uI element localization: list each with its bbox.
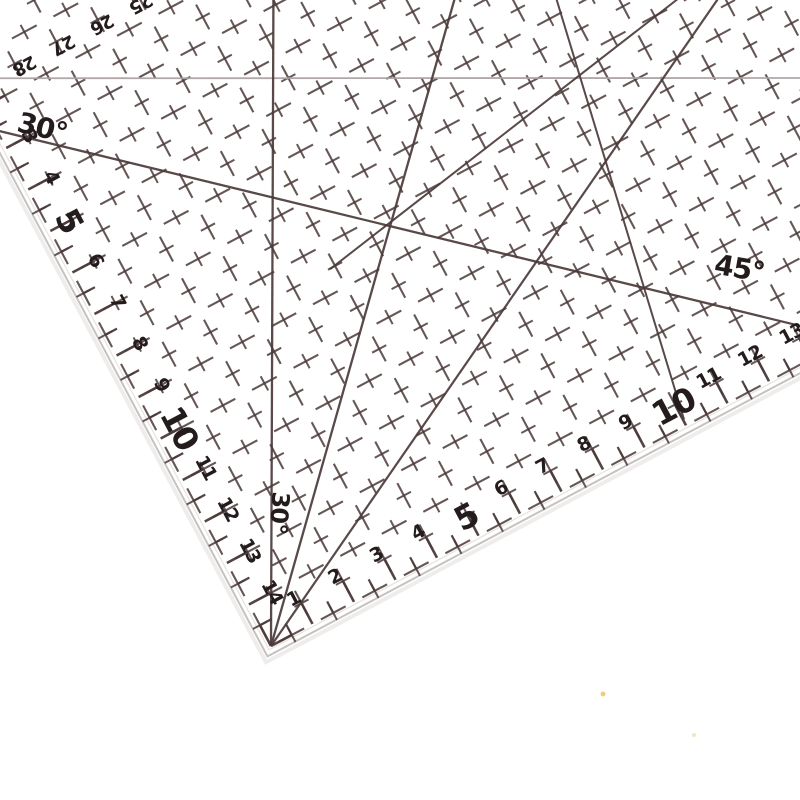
angle-label: 30° bbox=[264, 491, 295, 535]
quilting-ruler: 1234567891011121314345678910111213142827… bbox=[0, 0, 800, 800]
dust-speck bbox=[601, 692, 606, 697]
ruler-photo: 1234567891011121314345678910111213142827… bbox=[0, 0, 800, 800]
dust-speck bbox=[692, 733, 696, 737]
